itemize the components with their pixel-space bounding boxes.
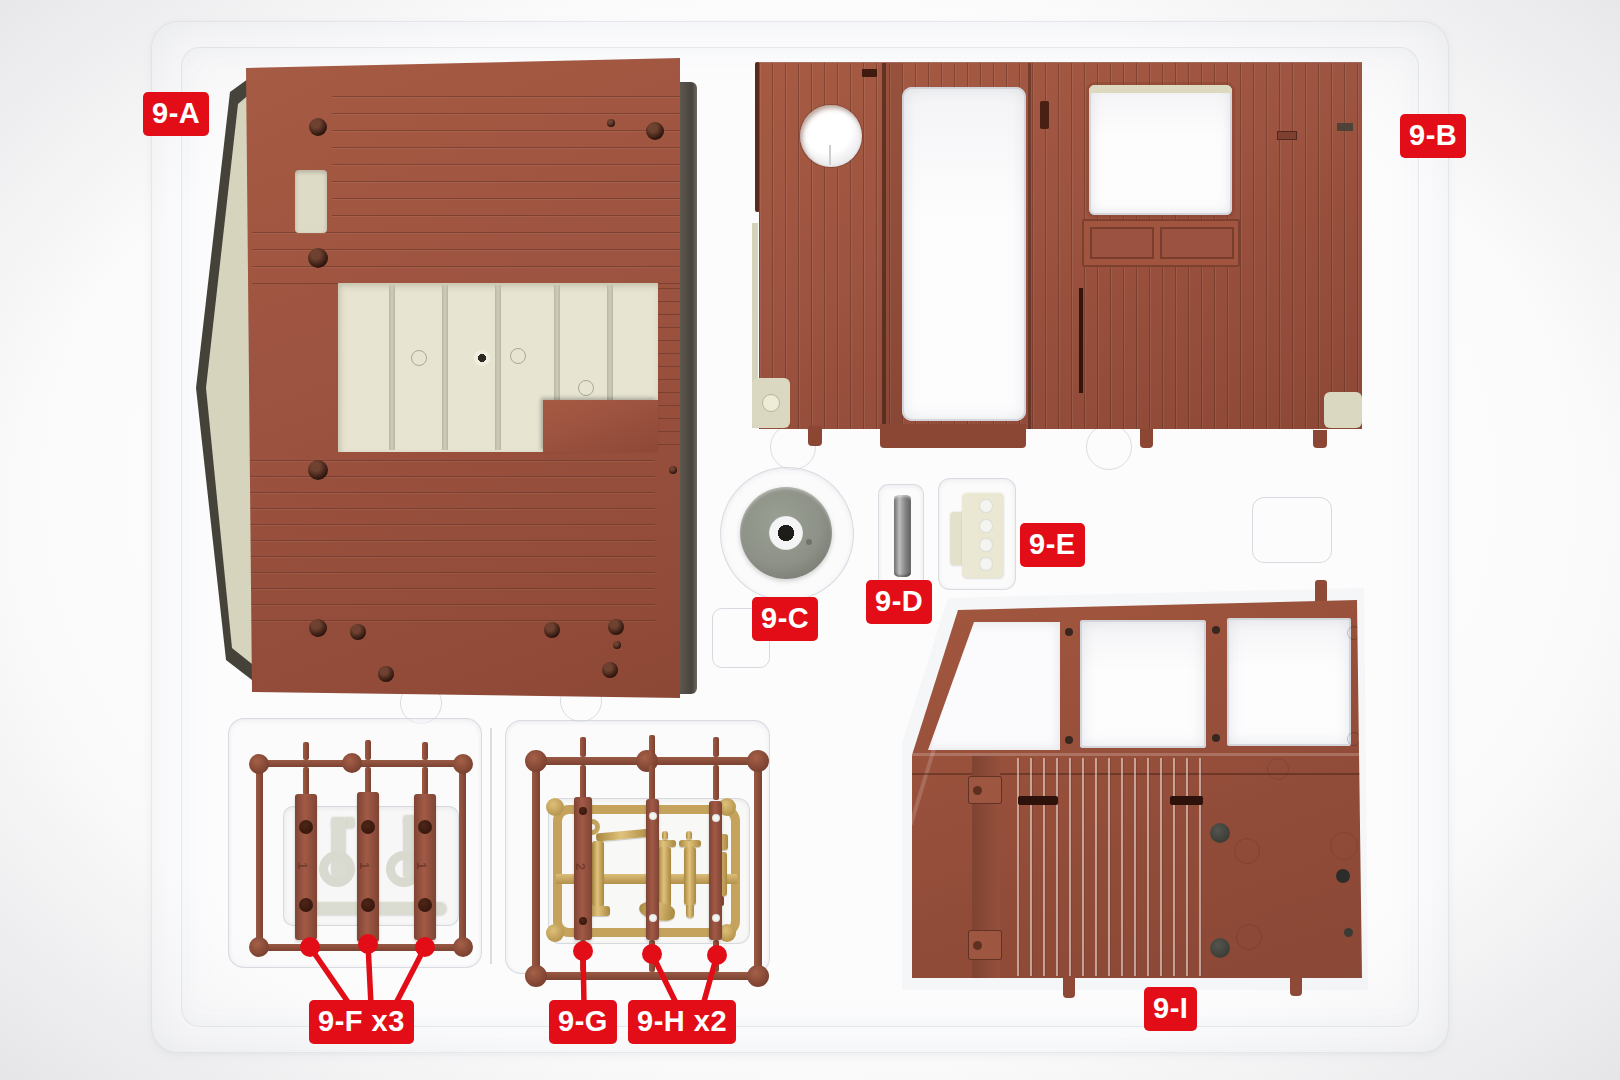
gold-lever-post <box>592 841 604 907</box>
part-9f-slat: 1 <box>295 794 317 940</box>
door-frame-groove <box>1028 63 1031 429</box>
sprue-runner <box>256 760 263 951</box>
part-9i-end-wall <box>878 580 1370 1012</box>
gold-boss <box>546 924 564 942</box>
mounting-hole <box>608 619 624 635</box>
sprue-gate <box>713 940 719 972</box>
gold-valve-tip <box>686 905 694 918</box>
wall-hole-dark <box>1344 928 1353 937</box>
slat-hole <box>299 898 313 912</box>
connector-hole <box>979 538 993 552</box>
bar-hole <box>649 914 657 922</box>
part-9f-slat: 1 <box>414 794 436 940</box>
sprue-stub <box>580 737 586 757</box>
sprue-runner <box>754 757 762 980</box>
mounting-hole <box>669 466 677 474</box>
part-label-9d: 9-D <box>866 580 932 624</box>
part-label-9e: 9-E <box>1020 523 1085 567</box>
sprue-9g-9h: 2 <box>505 720 770 988</box>
gold-valve-stem <box>686 831 692 840</box>
bottom-peg <box>1290 978 1302 996</box>
part-label-9a: 9-A <box>143 92 209 136</box>
mullion-hole <box>1212 626 1220 634</box>
sprue-gate <box>580 940 586 972</box>
cream-ring <box>319 851 355 887</box>
slat-hole <box>361 898 375 912</box>
wall-faint-circle <box>1330 832 1358 860</box>
mullion-hole <box>1065 628 1073 636</box>
door-slot <box>1170 796 1203 805</box>
wall-hole-dark <box>1336 869 1350 883</box>
sprue-runner <box>258 760 466 767</box>
wall-body <box>878 580 1370 1000</box>
sprue-stub <box>713 737 719 757</box>
inset-faint-circle <box>510 348 526 364</box>
part-label-9i: 9-I <box>1144 987 1197 1031</box>
wall-body <box>759 62 1362 429</box>
inset-faint-circle <box>411 350 427 366</box>
wall-hole-dark <box>1210 938 1230 958</box>
sprue-boss <box>453 754 473 774</box>
sprue-runner <box>532 757 540 980</box>
wall-slot <box>862 69 877 77</box>
part-9h-bar <box>709 801 722 940</box>
slat-hole <box>299 820 313 834</box>
part-9a-floor-panel <box>190 48 710 708</box>
window-opening <box>1227 618 1351 746</box>
connector-hole <box>979 519 993 533</box>
wall-notch <box>1277 131 1297 140</box>
wall-faint-circle <box>1236 924 1262 950</box>
sprue-stub <box>422 742 428 760</box>
sprue-boss <box>747 965 769 987</box>
window-sill-frame <box>1082 219 1240 267</box>
sprue-boss <box>747 750 769 772</box>
sprue-boss <box>249 937 269 957</box>
door-bottom-tab <box>880 424 1026 448</box>
molded-number: 1 <box>295 862 310 869</box>
corner-foot-cream <box>1324 392 1362 428</box>
mounting-hole <box>309 619 327 637</box>
inset-divider <box>442 285 448 450</box>
part-label-9f: 9-F x3 <box>309 1000 414 1044</box>
bottom-tab <box>1140 429 1153 448</box>
sprue-stub <box>365 740 371 760</box>
inset-screw-hole <box>474 350 490 366</box>
door-frame-shade <box>886 63 902 429</box>
sprue-gate <box>649 940 655 972</box>
part-label-9h: 9-H x2 <box>628 1000 736 1044</box>
connector-hole <box>979 499 993 513</box>
part-label-9g: 9-G <box>549 1000 617 1044</box>
sprue-runner <box>532 972 762 980</box>
connector-body <box>962 492 1004 578</box>
part-9g-bar: 2 <box>574 797 592 940</box>
inset-divider <box>554 285 560 400</box>
bar-hole <box>579 807 587 815</box>
porthole-seam <box>829 145 831 165</box>
sprue-stub <box>649 735 655 757</box>
mounting-hole <box>646 122 664 140</box>
hinge-pin <box>973 941 982 950</box>
inset-brown-notch <box>543 400 658 452</box>
mounting-hole <box>544 622 560 638</box>
part-9c-smokejack-base <box>720 467 852 607</box>
plank-grooves <box>250 460 655 624</box>
sprue-boss <box>342 753 362 773</box>
sprue-boss <box>453 937 473 957</box>
molded-number: 1 <box>357 862 372 869</box>
part-9b-side-wall <box>752 58 1370 458</box>
mounting-hole <box>607 119 615 127</box>
panel-side-dark-edge <box>680 82 697 694</box>
hinge-pin <box>973 786 982 795</box>
wall-notch <box>1337 123 1353 131</box>
connector-hole <box>979 557 993 571</box>
disc-hub-hole <box>769 516 803 550</box>
sprue-gate <box>580 765 586 800</box>
panel-body <box>246 56 680 700</box>
bar-hole <box>649 812 657 820</box>
sprue-boss <box>525 750 547 772</box>
molded-number: 2 <box>573 863 588 870</box>
part-label-9b: 9-B <box>1400 114 1466 158</box>
gold-boss <box>546 798 564 816</box>
part-9e-connector <box>938 478 1018 594</box>
porthole-opening <box>800 105 862 167</box>
wall-hole-dark <box>1210 823 1230 843</box>
model-kit-parts-photo: 1 1 1 <box>0 0 1620 1080</box>
mullion-hole <box>1212 734 1220 742</box>
plank-grooves <box>658 288 680 456</box>
corner-foot-cream <box>752 378 790 428</box>
sprue-boss <box>525 965 547 987</box>
sprue-gate <box>303 767 309 795</box>
inset-divider <box>607 285 613 400</box>
bottom-peg <box>1063 978 1075 998</box>
hinge-plate <box>968 776 1002 804</box>
part-9f-slat: 1 <box>357 792 379 942</box>
sill-panel <box>1160 227 1234 259</box>
sprue-boss <box>249 754 269 774</box>
door-planks <box>1017 758 1210 976</box>
panel-slot-opening <box>295 170 327 233</box>
mounting-hole <box>308 460 328 480</box>
gold-valve-handle <box>679 840 701 847</box>
sprue-runner <box>459 760 466 951</box>
inset-divider <box>495 285 501 450</box>
gray-disc <box>740 487 832 579</box>
sprue-gate <box>422 767 428 795</box>
mounting-hole <box>308 248 328 268</box>
gold-valve-body <box>658 847 671 907</box>
sprue-gate <box>365 767 371 795</box>
sill-panel <box>1090 227 1154 259</box>
mounting-hole <box>350 624 366 640</box>
slat-hole <box>418 820 432 834</box>
gold-valve-stem <box>662 831 668 840</box>
wall-faint-circle <box>1234 838 1260 864</box>
foot-knob <box>762 394 780 412</box>
panel-cream-inset <box>338 283 658 452</box>
mounting-hole <box>309 118 327 136</box>
molded-number: 1 <box>414 862 429 869</box>
sprue-runner <box>258 944 466 951</box>
plank-grooves <box>332 96 680 284</box>
door-opening <box>902 87 1026 421</box>
mounting-hole <box>613 641 621 649</box>
hinge-plate <box>968 930 1002 960</box>
part-9h-bar <box>646 799 659 940</box>
tray-emboss-square <box>1252 497 1332 563</box>
sprue-stub <box>303 742 309 760</box>
wall-slot <box>1040 101 1049 129</box>
tray-divider-ridge <box>490 728 492 964</box>
bar-hole <box>712 814 720 822</box>
sprue-gate <box>713 765 719 800</box>
gold-valve-body <box>684 847 696 905</box>
window-opening <box>1080 620 1206 748</box>
slat-hole <box>361 820 375 834</box>
window-opening <box>1089 85 1232 215</box>
wall-groove-slot <box>1079 288 1083 393</box>
inset-faint-circle <box>578 380 594 396</box>
sprue-9f: 1 1 1 <box>228 718 484 970</box>
part-label-9c: 9-C <box>752 597 818 641</box>
sprue-gate <box>649 765 655 800</box>
bottom-tab <box>1313 430 1327 448</box>
gray-cylinder <box>894 495 911 577</box>
top-peg <box>1315 580 1327 602</box>
bar-hole <box>579 917 587 925</box>
wall-faint-circle <box>1267 758 1289 780</box>
slat-hole <box>418 898 432 912</box>
mounting-hole <box>378 666 394 682</box>
bar-hole <box>712 914 720 922</box>
bottom-tab <box>808 426 822 446</box>
door-slot <box>1018 796 1058 805</box>
mullion-hole <box>1065 736 1073 744</box>
window-cream-rim <box>1089 85 1232 93</box>
inset-divider <box>389 285 395 450</box>
disc-dot <box>806 539 812 545</box>
mounting-hole <box>602 662 618 678</box>
